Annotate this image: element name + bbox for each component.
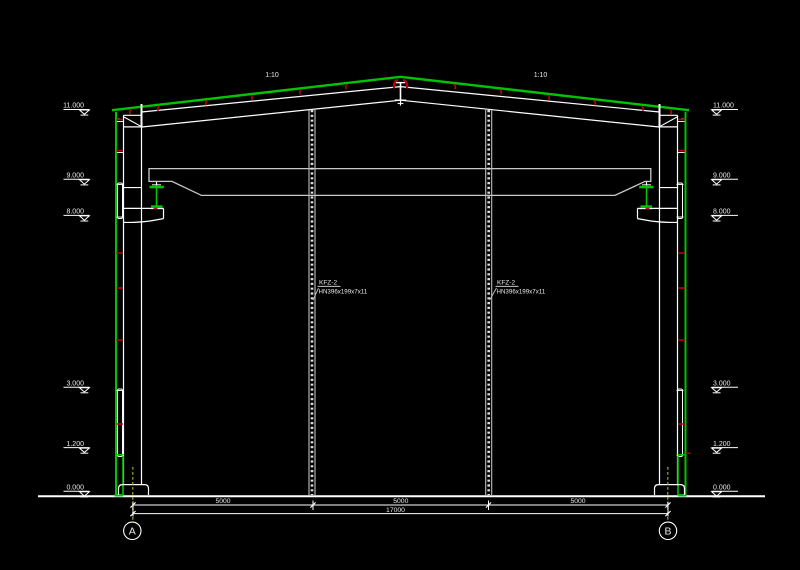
svg-text:9.000: 9.000 <box>713 173 731 180</box>
svg-text:KFZ-2: KFZ-2 <box>319 280 337 287</box>
svg-text:1.200: 1.200 <box>66 441 84 448</box>
svg-text:9.000: 9.000 <box>66 173 84 180</box>
svg-text:B: B <box>664 526 671 538</box>
svg-text:11.000: 11.000 <box>713 103 734 110</box>
svg-text:3.000: 3.000 <box>66 380 84 387</box>
svg-text:KFZ-2: KFZ-2 <box>497 280 515 287</box>
svg-text:1.200: 1.200 <box>713 441 731 448</box>
svg-text:0.000: 0.000 <box>713 485 731 492</box>
svg-text:HN396x199x7x11: HN396x199x7x11 <box>319 289 368 296</box>
svg-text:HN396x199x7x11: HN396x199x7x11 <box>497 289 546 296</box>
svg-text:8.000: 8.000 <box>713 209 731 216</box>
svg-text:0.000: 0.000 <box>66 485 84 492</box>
svg-text:3.000: 3.000 <box>713 380 731 387</box>
svg-text:8.000: 8.000 <box>66 209 84 216</box>
svg-text:A: A <box>129 526 136 538</box>
svg-text:5000: 5000 <box>393 498 408 505</box>
svg-text:5000: 5000 <box>570 498 585 505</box>
svg-text:1:10: 1:10 <box>265 72 279 79</box>
svg-text:5000: 5000 <box>215 498 230 505</box>
svg-text:17000: 17000 <box>386 507 405 514</box>
svg-text:1:10: 1:10 <box>534 72 548 79</box>
svg-text:11.000: 11.000 <box>63 103 84 110</box>
